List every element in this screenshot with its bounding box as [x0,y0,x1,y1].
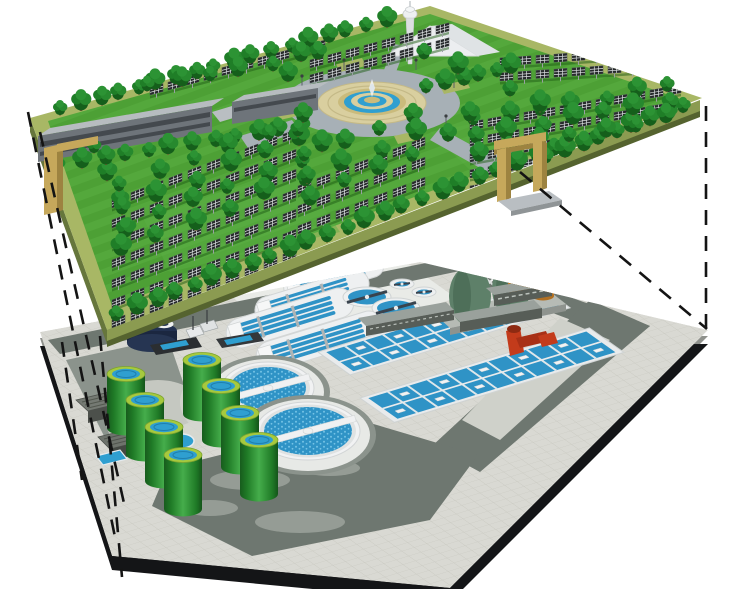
solar-panel [650,136,663,146]
solar-panel [668,133,681,143]
solar-panel [626,48,639,57]
solar-panel [554,68,567,77]
digester-tank-green [164,448,202,517]
clarifier-hub [394,306,398,310]
solar-panel [590,66,603,75]
tank-body [240,440,278,502]
solar-panel [536,70,549,79]
solar-panel [608,65,621,74]
solar-panel [608,50,621,59]
digester-pipe [468,257,512,266]
fountain-core [364,97,380,103]
red-pump-top [507,325,521,333]
tank-body [164,455,202,517]
fountain-spray-top [370,84,375,92]
solar-panel [626,63,639,72]
solar-panel [668,149,681,159]
road-stain [255,511,345,533]
clarifier-hub [303,428,313,434]
solar-panel [572,52,585,61]
lamp-head [300,74,303,77]
lamp-head [414,58,417,61]
lamp-head [444,114,447,117]
clarifier-hub [401,283,404,286]
storage-tank-orange-top [508,264,530,273]
west-gate-pillar-side [57,145,63,212]
solar-panel [518,71,531,80]
digester-tank-green [240,433,278,502]
east-gate-pillar-side [506,148,511,200]
solar-panel [578,165,591,175]
east-gate-pillar [533,141,542,192]
solar-panel [650,152,663,162]
solar-panel [572,67,585,76]
solar-panel [554,53,567,62]
illustration-underground-wwtp-under-solar-park [0,0,740,589]
solar-panel [536,55,549,64]
scene-canvas [0,0,740,589]
egg-digester-top [506,259,516,265]
east-gate-pillar-side [542,141,547,190]
solar-panel [596,161,609,171]
solar-panel [590,51,603,60]
tower-head-upper [406,7,415,13]
solar-panel [614,158,627,168]
storage-tank-orange-top [532,271,554,280]
clarifier-hub [263,385,273,391]
west-gate-pillar [44,145,57,215]
clarifier-hub [423,291,426,294]
ditch-outlet [364,260,376,271]
east-gate-pillar [497,148,506,202]
egg-digester-top [465,263,475,269]
solar-panel [632,155,645,165]
clarifier-hub [365,295,369,299]
